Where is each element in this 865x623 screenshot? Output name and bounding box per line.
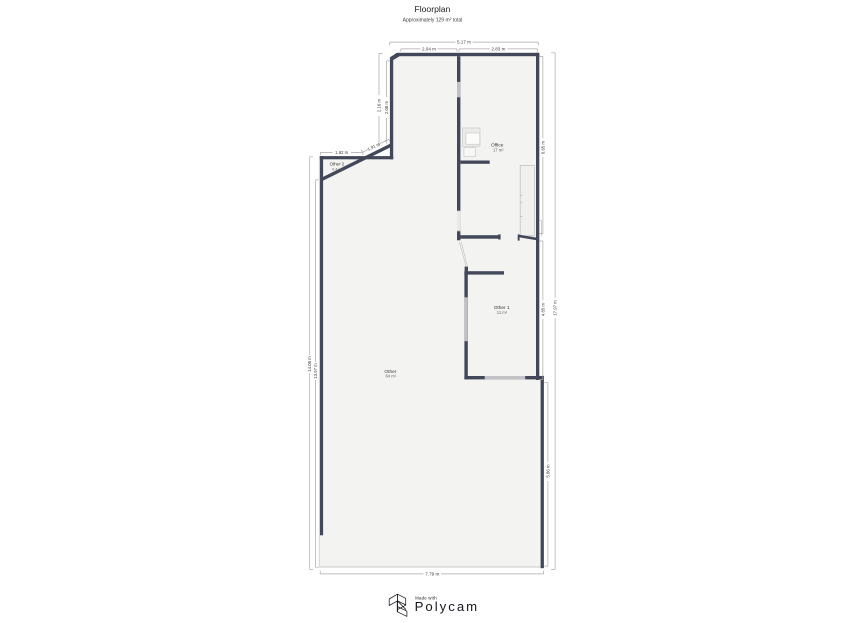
svg-text:5.17 m: 5.17 m [457, 40, 471, 45]
svg-text:13.97 m: 13.97 m [313, 363, 318, 379]
svg-text:6.65 m: 6.65 m [540, 141, 545, 155]
svg-text:7.79 m: 7.79 m [425, 572, 439, 577]
svg-text:14.08 m: 14.08 m [307, 356, 312, 372]
svg-text:1.92 m: 1.92 m [335, 150, 349, 155]
svg-text:Floorplan: Floorplan [414, 4, 450, 14]
svg-text:17 m²: 17 m² [493, 148, 504, 153]
svg-text:2.04 m: 2.04 m [422, 47, 436, 52]
svg-text:64 m²: 64 m² [385, 374, 396, 379]
svg-text:2.08 m: 2.08 m [384, 101, 389, 115]
svg-text:5.86 m: 5.86 m [545, 464, 550, 478]
svg-text:4.65 m: 4.65 m [540, 303, 545, 317]
svg-text:17.97 m: 17.97 m [553, 300, 558, 316]
svg-text:2.83 m: 2.83 m [491, 47, 505, 52]
svg-text:0.4 m²: 0.4 m² [332, 166, 344, 171]
svg-text:2.16 m: 2.16 m [376, 99, 381, 113]
svg-text:Polycam: Polycam [415, 599, 480, 614]
svg-text:Approximately 129 m2 total: Approximately 129 m2 total [403, 17, 463, 23]
svg-text:11 m²: 11 m² [497, 310, 508, 315]
